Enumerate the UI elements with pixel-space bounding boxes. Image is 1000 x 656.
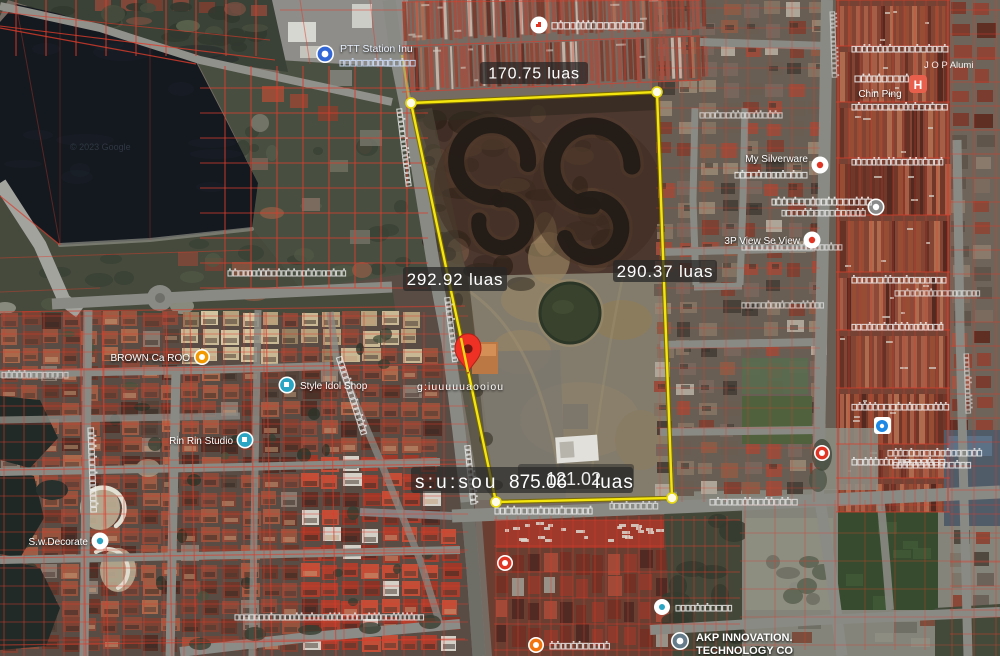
svg-text:H: H [914, 78, 923, 92]
svg-text:3P View Se View: 3P View Se View [724, 236, 800, 247]
svg-text:292.92 luas: 292.92 luas [407, 270, 504, 289]
svg-text:S.w.Decorate: S.w.Decorate [29, 537, 89, 548]
svg-text:170.75 luas: 170.75 luas [488, 65, 580, 82]
svg-text:AKP INNOVATION.: AKP INNOVATION. [696, 632, 793, 644]
svg-text:J O P Alumi: J O P Alumi [924, 60, 973, 71]
svg-text:Style Idol Shop: Style Idol Shop [300, 381, 368, 392]
svg-text:Rin Rin Studio: Rin Rin Studio [169, 436, 233, 447]
svg-text:g:iuuuuuaooiou: g:iuuuuuaooiou [417, 381, 504, 393]
svg-text:TECHNOLOGY CO: TECHNOLOGY CO [696, 645, 793, 656]
svg-text:BROWN Ca ROO: BROWN Ca ROO [111, 353, 191, 364]
svg-text:My Silverware: My Silverware [745, 154, 808, 165]
svg-text:Chin Ping: Chin Ping [858, 89, 901, 100]
svg-text:PTT Station Inu: PTT Station Inu [340, 43, 413, 55]
svg-text:121.02: 121.02 [546, 469, 601, 489]
svg-text:s:u:sou: s:u:sou [415, 472, 499, 493]
svg-text:290.37 luas: 290.37 luas [617, 262, 714, 281]
